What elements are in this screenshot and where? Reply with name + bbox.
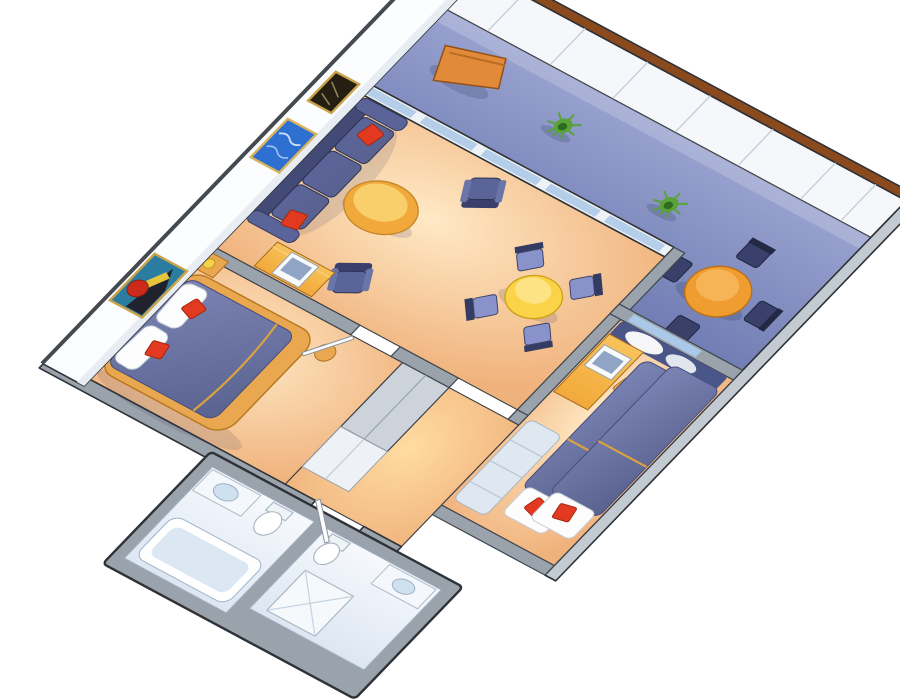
chair-seat — [569, 276, 594, 300]
chair-seat — [473, 294, 498, 318]
suite-floorplan-rendering — [0, 0, 900, 700]
suite-scene — [0, 0, 900, 700]
floorplan-canvas — [0, 0, 900, 700]
